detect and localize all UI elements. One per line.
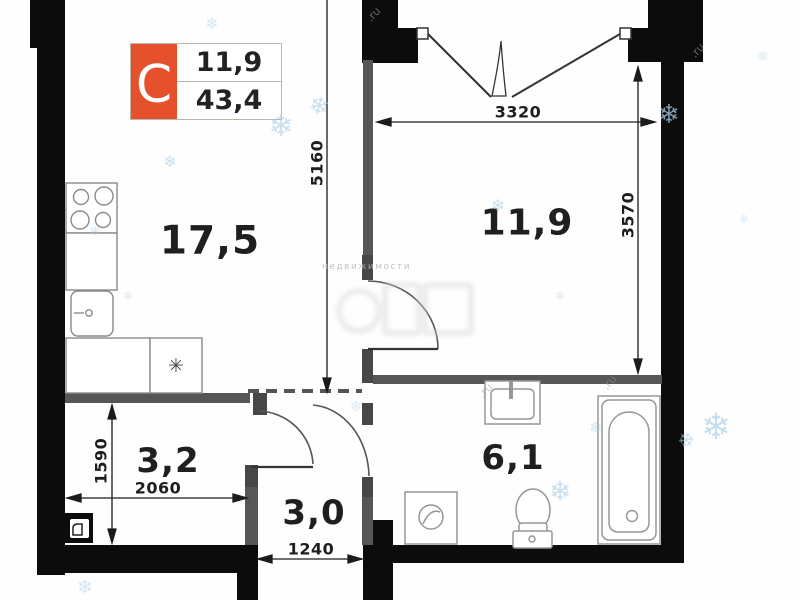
dim-label-3570: 3570 [619,192,638,239]
room-label-living: 17,5 [160,219,260,264]
wall-top-stub-ext [396,28,418,63]
partition-living-bedroom [363,60,373,268]
area-badge: С 11,9 43,4 [130,43,282,120]
badge-room-area: 11,9 [177,44,281,82]
jamb-bath-door-bottom [362,477,373,497]
kitchen-counter-icon [66,233,117,290]
dim-label-3320: 3320 [495,103,542,122]
window-center-spike [492,41,506,96]
jamb-bedroom-door-bottom [362,349,373,383]
room-label-room: 3,2 [136,441,199,481]
washing-machine-icon [405,492,457,544]
badge-table: 11,9 43,4 [177,44,281,119]
wash-basin-icon [485,381,540,424]
window-symbol [417,28,631,97]
counter-bottom-icon [66,338,150,393]
room-door-arc [259,411,313,464]
room-label-bath: 6,1 [481,438,544,478]
jamb-bedroom-door-top [362,255,373,280]
door-jambs [245,255,373,497]
partition-kitchen-room [65,393,250,403]
dim-label-5160: 5160 [308,140,327,187]
jamb-room-door-bottom [245,465,258,487]
bedroom-door-arc [368,281,438,349]
window-hinge-left [417,28,428,39]
dim-label-1240: 1240 [288,540,335,559]
bath-door-arc [313,405,369,476]
dim-label-2060: 2060 [135,479,182,498]
wall-left [37,0,65,575]
badge-letter: С [131,44,177,119]
dim-label-1590: 1590 [92,438,111,485]
floor-plan: С 11,9 43,4 17,5 11,9 3,2 3,0 6,1 5160 3… [0,0,800,600]
wall-bottom-left [37,545,237,573]
partition-hall-bath-lower [362,497,373,545]
window-leaf-left [428,34,491,97]
wall-corridor-left [237,545,258,600]
window-leaf-right [512,34,620,97]
toilet-icon [513,489,552,548]
jamb-bath-door-top [362,403,373,425]
wall-top-stub [362,0,398,63]
window-hinge-right [620,28,631,39]
bathtub-icon [598,396,660,544]
badge-total-area: 43,4 [177,82,281,119]
room-label-hall: 3,0 [282,493,345,533]
appliance-star-symbol: ✳ [168,355,184,377]
room-label-bedroom: 11,9 [481,203,574,244]
floor-plan-drawing [0,0,800,600]
electrical-panel-icon [65,513,93,543]
wall-right [661,28,684,563]
